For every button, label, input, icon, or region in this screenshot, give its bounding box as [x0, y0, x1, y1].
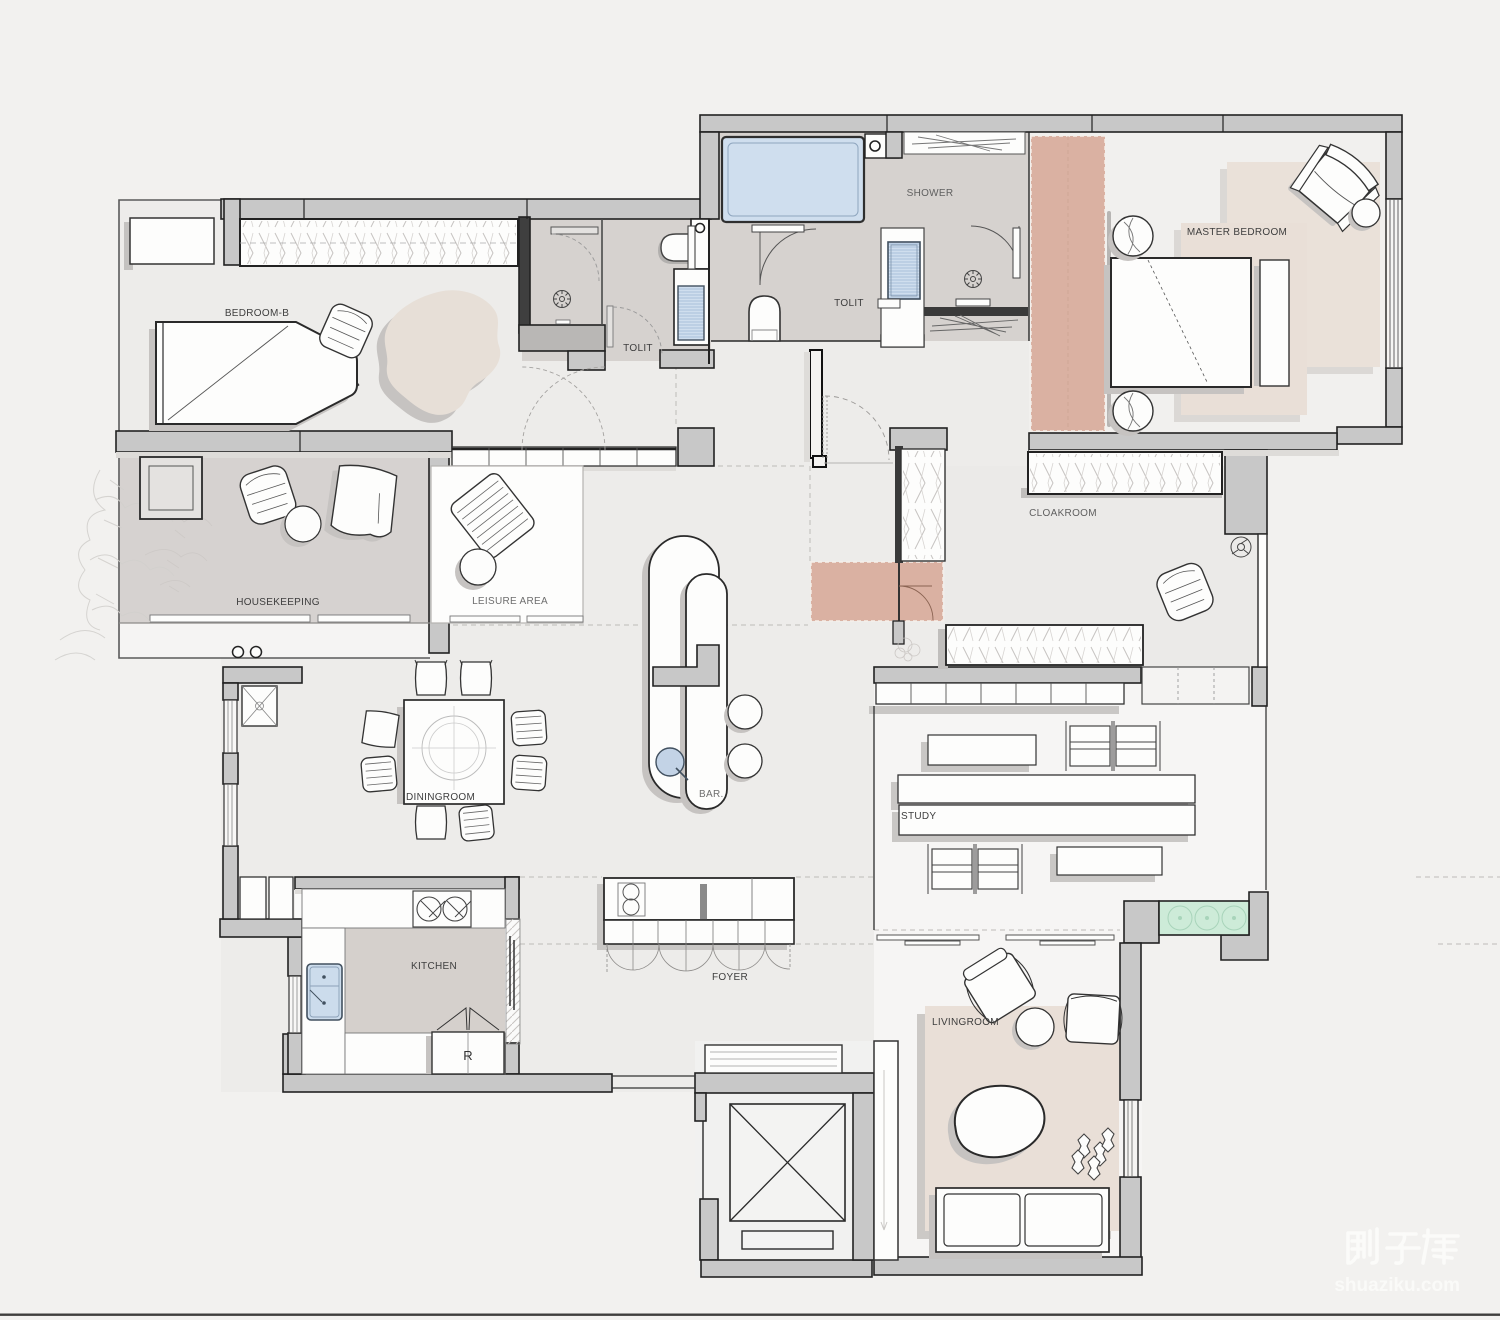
svg-text:HOUSEKEEPING: HOUSEKEEPING: [236, 597, 320, 608]
svg-text:LEISURE AREA: LEISURE AREA: [472, 596, 548, 607]
svg-text:KITCHEN: KITCHEN: [411, 961, 457, 972]
svg-text:BAR.: BAR.: [699, 789, 724, 800]
svg-text:FOYER: FOYER: [712, 972, 748, 983]
svg-text:BEDROOM-B: BEDROOM-B: [225, 308, 289, 319]
svg-text:DININGROOM: DININGROOM: [406, 792, 475, 803]
svg-text:MASTER BEDROOM: MASTER BEDROOM: [1187, 227, 1287, 238]
svg-text:STUDY: STUDY: [901, 811, 936, 822]
svg-text:R: R: [463, 1048, 472, 1063]
svg-text:shuaziku.com: shuaziku.com: [1334, 1275, 1460, 1296]
svg-text:TOLIT: TOLIT: [834, 298, 864, 309]
svg-text:LIVINGROOM: LIVINGROOM: [932, 1017, 999, 1028]
svg-text:TOLIT: TOLIT: [623, 343, 653, 354]
svg-text:SHOWER: SHOWER: [907, 188, 954, 199]
svg-text:CLOAKROOM: CLOAKROOM: [1029, 508, 1097, 519]
